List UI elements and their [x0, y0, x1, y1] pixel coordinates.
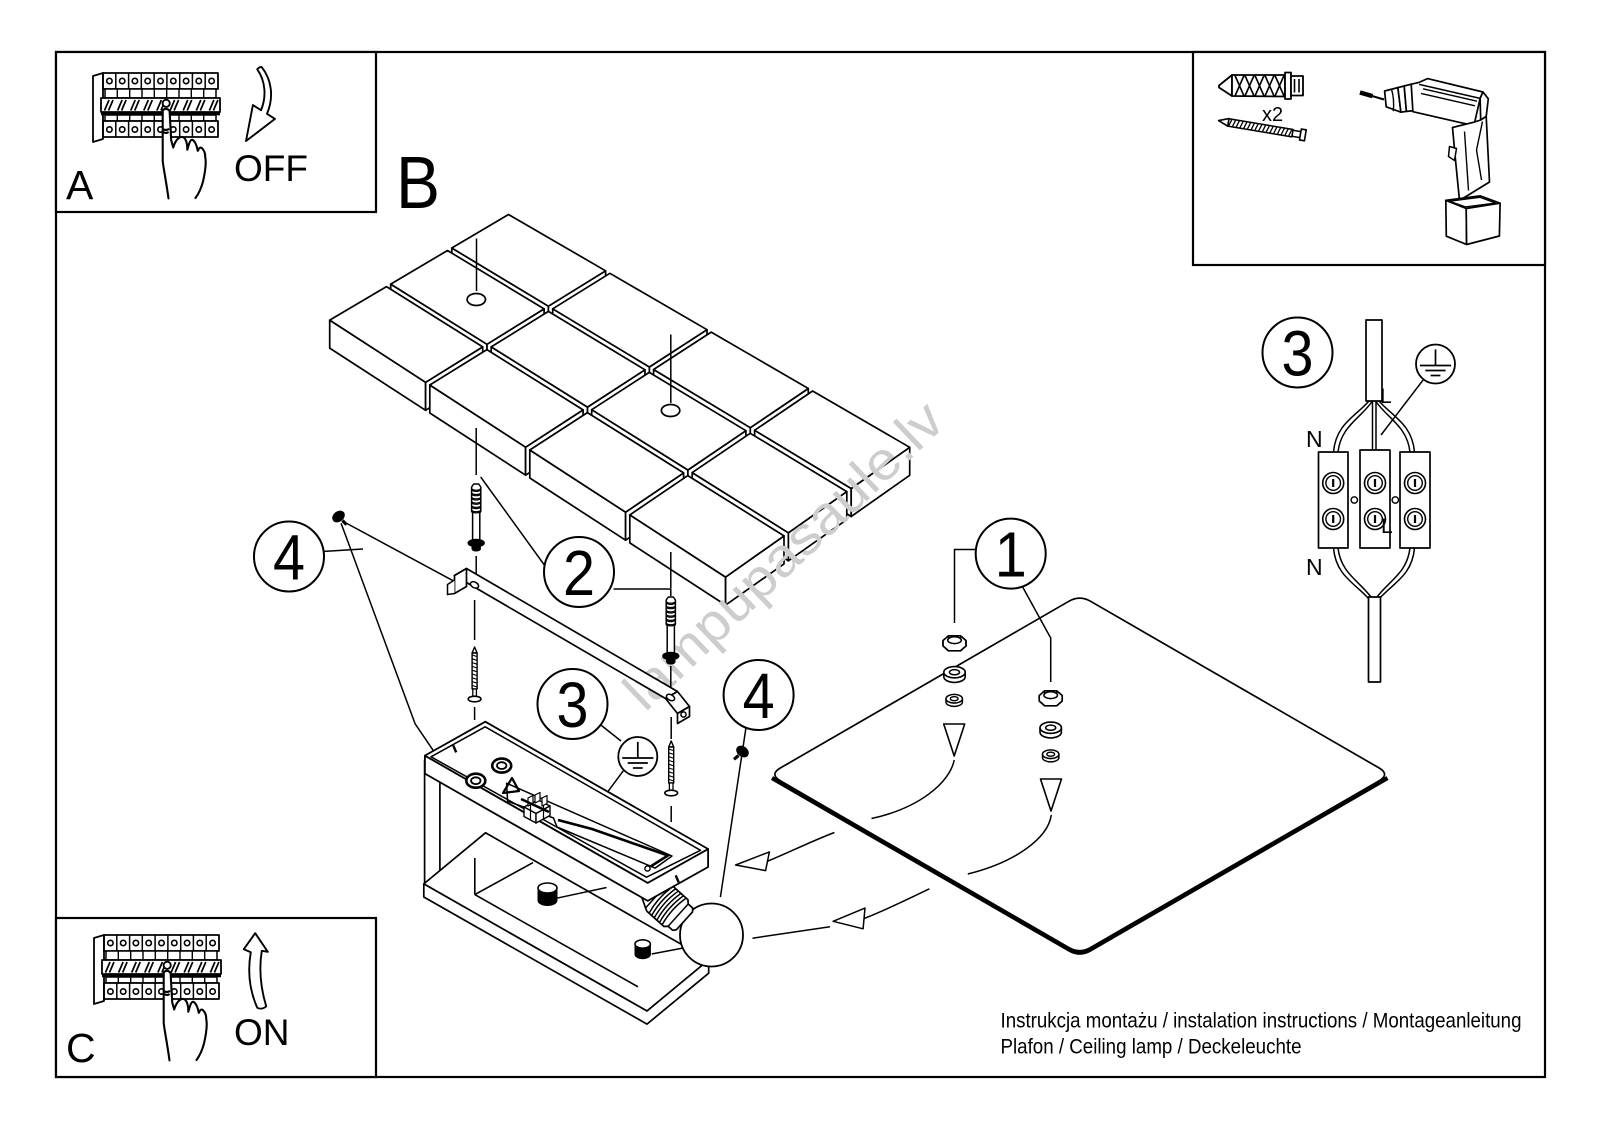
svg-text:1: 1: [995, 519, 1027, 591]
svg-text:C: C: [66, 1025, 96, 1071]
svg-text:L: L: [1381, 515, 1393, 538]
svg-text:Plafon / Ceiling lamp / Deckel: Plafon / Ceiling lamp / Deckeleuchte: [1001, 1034, 1302, 1058]
svg-text:3: 3: [557, 669, 589, 741]
svg-text:4: 4: [273, 522, 305, 594]
svg-text:N: N: [1306, 554, 1323, 580]
svg-text:B: B: [396, 141, 440, 224]
svg-text:x2: x2: [1262, 104, 1283, 126]
svg-text:4: 4: [743, 660, 775, 732]
svg-text:Instrukcja montażu / instalati: Instrukcja montażu / instalation instruc…: [1001, 1009, 1522, 1033]
svg-text:2: 2: [563, 537, 595, 609]
svg-text:OFF: OFF: [234, 148, 308, 189]
svg-text:3: 3: [1282, 318, 1314, 390]
svg-text:A: A: [66, 162, 94, 208]
svg-text:N: N: [1306, 426, 1323, 452]
svg-text:ON: ON: [234, 1012, 290, 1053]
